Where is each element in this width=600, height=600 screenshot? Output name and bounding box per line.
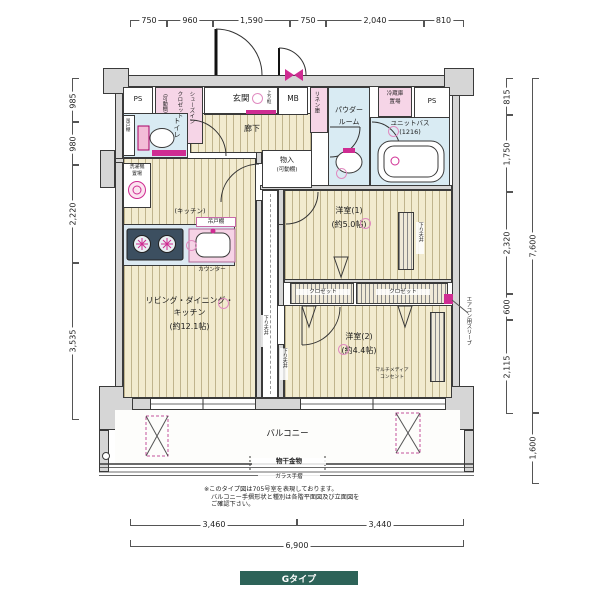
fridge-label-1: 冷蔵庫 bbox=[378, 91, 412, 97]
dim-top-6: 810 bbox=[423, 20, 464, 27]
window-ldk bbox=[150, 398, 256, 410]
bath-label-2: (1216) bbox=[370, 129, 450, 136]
dim-top-5: 2,040 bbox=[325, 20, 425, 27]
dim-left-1-label: 985 bbox=[68, 91, 77, 110]
plan-note-line-1: ※このタイプ図は705号室を表現しております。 bbox=[204, 486, 359, 494]
closet-left-label: クロゼット bbox=[296, 289, 350, 295]
dim-left-3-label: 2,220 bbox=[68, 201, 77, 228]
counter-label: カウンター bbox=[188, 267, 236, 273]
marker-circle bbox=[252, 93, 263, 104]
dim-bottom-1: 3,460 bbox=[130, 519, 298, 526]
dim-right-total: 7,600 bbox=[532, 78, 539, 414]
storage-shelf-label: (可動棚) bbox=[262, 167, 312, 173]
ac-sleeve-label: エアコン用スリーブ bbox=[465, 296, 471, 360]
room-bedroom1 bbox=[284, 190, 452, 280]
balcony-label: バルコニー bbox=[115, 430, 460, 440]
shoes-closet-shelf-label: (可動棚) bbox=[161, 94, 167, 140]
multimedia-label-2: コンセント bbox=[360, 375, 424, 381]
dim-top-3: 1,590 bbox=[212, 20, 291, 27]
dim-left-4-label: 3,535 bbox=[68, 328, 77, 355]
entrance-door-swing bbox=[216, 29, 262, 75]
dim-top-4: 750 bbox=[289, 20, 327, 27]
lowered-ceiling-label-a: 下り天井 bbox=[261, 315, 269, 347]
powder-label-2: ルーム bbox=[328, 118, 370, 126]
balcony-wall-right bbox=[464, 430, 474, 472]
dim-right-1: 815 bbox=[506, 78, 513, 116]
dim-left-2-label: 980 bbox=[68, 134, 77, 153]
dim-top-2: 960 bbox=[166, 20, 214, 27]
floor-plan: 750 960 1,590 750 2,040 810 985 980 2,22… bbox=[0, 0, 600, 600]
wall-bump-left bbox=[100, 150, 115, 188]
dim-bottom-total: 6,900 bbox=[130, 540, 464, 547]
balcony-wall-left bbox=[99, 430, 109, 472]
room-powder bbox=[328, 87, 370, 186]
storage-label: 物入 bbox=[262, 156, 312, 164]
dim-right-2-label: 1,750 bbox=[502, 140, 511, 167]
dim-right-2: 1,750 bbox=[506, 114, 513, 193]
closet-right-label: クロゼット bbox=[376, 289, 430, 295]
dim-bottom-total-label: 6,900 bbox=[284, 541, 311, 550]
dim-left-1: 985 bbox=[72, 78, 79, 123]
washer-label-2: 置場 bbox=[123, 172, 151, 178]
ldk-size-label: (約12.1帖) bbox=[123, 322, 256, 331]
dim-left-2: 980 bbox=[72, 121, 79, 166]
ps-right-label: PS bbox=[414, 97, 450, 105]
kitchen-note-label: (キッチン) bbox=[150, 208, 230, 215]
lowered-ceiling-dash bbox=[270, 194, 271, 394]
bedroom2-label: 洋室(2) bbox=[284, 332, 434, 341]
dim-top-6-label: 810 bbox=[434, 16, 453, 25]
type-badge: Gタイプ bbox=[240, 571, 358, 585]
wall-top bbox=[115, 75, 460, 87]
dim-left-3: 2,220 bbox=[72, 164, 79, 264]
fridge-label-2: 置場 bbox=[378, 99, 412, 105]
dim-left-4: 3,535 bbox=[72, 262, 79, 420]
dim-bottom-2: 3,440 bbox=[296, 519, 464, 526]
ps-left-label: PS bbox=[123, 95, 153, 103]
marker-circle bbox=[186, 240, 197, 251]
glass-rail-label: ガラス手摺 bbox=[258, 474, 320, 480]
dim-right-4-label: 600 bbox=[502, 297, 511, 316]
lowered-ceiling-label-b: 下り天井 bbox=[280, 348, 288, 380]
bath-label-1: ユニットバス bbox=[370, 120, 450, 127]
dim-top-1-label: 750 bbox=[139, 16, 158, 25]
powder-label-1: パウダー bbox=[328, 106, 370, 114]
marker-circle bbox=[338, 344, 349, 355]
bedroom2-size-label: (約4.4帖) bbox=[284, 346, 434, 355]
dim-top-4-label: 750 bbox=[298, 16, 317, 25]
ldk-label-1: リビング・ダイニング・ bbox=[123, 296, 256, 305]
dim-right-3-label: 2,320 bbox=[502, 230, 511, 257]
dim-right-3: 2,320 bbox=[506, 191, 513, 295]
dim-bottom-1-label: 3,460 bbox=[201, 520, 228, 529]
marker-circle bbox=[388, 126, 399, 137]
mb-door-swing bbox=[279, 48, 306, 75]
window-bedroom2 bbox=[300, 398, 446, 410]
marker-circle bbox=[360, 218, 371, 229]
dim-balcony-depth-label: 1,600 bbox=[528, 435, 537, 462]
lowered-ceiling-label-c: 下り天井 bbox=[416, 222, 424, 254]
washer-label-1: 洗濯機 bbox=[123, 165, 151, 171]
bedroom1-size-label: (約5.0帖) bbox=[284, 220, 414, 229]
bedroom1-label: 洋室(1) bbox=[284, 206, 414, 215]
dim-bottom-2-label: 3,440 bbox=[367, 520, 394, 529]
marker-circle bbox=[336, 168, 347, 179]
kitchen-counter-zone bbox=[123, 224, 235, 266]
dim-top-3-label: 1,590 bbox=[238, 16, 265, 25]
plan-note-line-2: バルコニー手摺形状と種別は各階平面図及び立面図を bbox=[211, 494, 359, 502]
kitchen-shelf-label: 吊戸棚 bbox=[198, 219, 234, 225]
plan-note: ※このタイプ図は705号室を表現しております。 バルコニー手摺形状と種別は各階平… bbox=[204, 486, 359, 509]
toilet-label: トイレ bbox=[173, 117, 181, 155]
entrance-step-label: 上り框 bbox=[266, 90, 271, 114]
ldk-label-2: キッチン bbox=[123, 308, 256, 317]
ac-sleeve-mark bbox=[444, 294, 453, 304]
toilet-shelf-label: 吊戸棚 bbox=[125, 118, 130, 154]
marker-circle bbox=[218, 298, 229, 309]
wall-right bbox=[452, 75, 460, 410]
dim-right-5-label: 2,115 bbox=[502, 353, 511, 380]
wall-left bbox=[115, 75, 123, 410]
dim-right-total-label: 7,600 bbox=[528, 233, 537, 260]
entrance-step-accent bbox=[246, 110, 276, 114]
corridor-label: 廊下 bbox=[222, 124, 282, 133]
mb-label: MB bbox=[278, 95, 308, 104]
type-badge-label: Gタイプ bbox=[282, 572, 316, 585]
dim-right-1-label: 815 bbox=[502, 87, 511, 106]
dim-right-5: 2,115 bbox=[506, 319, 513, 414]
linen-label: リネン庫 bbox=[313, 91, 319, 131]
dim-right-4: 600 bbox=[506, 293, 513, 321]
dim-top-5-label: 2,040 bbox=[362, 16, 389, 25]
multimedia-label-1: マルチメディア bbox=[360, 368, 424, 374]
shoes-closet-label-1: シューズイン bbox=[188, 91, 194, 141]
dim-balcony-depth: 1,600 bbox=[532, 412, 539, 484]
plan-note-line-3: ご確認下さい。 bbox=[211, 501, 359, 509]
dim-top-1: 750 bbox=[130, 20, 168, 27]
dim-top-2-label: 960 bbox=[180, 16, 199, 25]
laundry-hardware-label: 物干金物 bbox=[252, 458, 326, 465]
